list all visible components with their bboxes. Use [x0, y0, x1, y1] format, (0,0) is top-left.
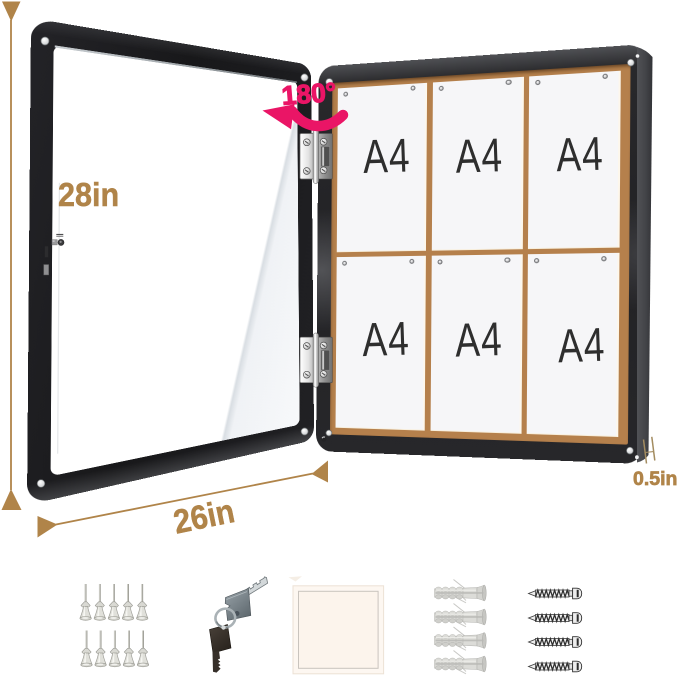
- svg-text:A4: A4: [454, 313, 503, 368]
- svg-text:A4: A4: [555, 127, 604, 182]
- svg-text:A4: A4: [362, 129, 411, 184]
- svg-text:A4: A4: [361, 312, 410, 367]
- svg-text:A4: A4: [557, 318, 606, 373]
- svg-text:A4: A4: [455, 129, 504, 184]
- svg-text:0.5in: 0.5in: [633, 468, 677, 490]
- svg-text:28in: 28in: [58, 176, 119, 214]
